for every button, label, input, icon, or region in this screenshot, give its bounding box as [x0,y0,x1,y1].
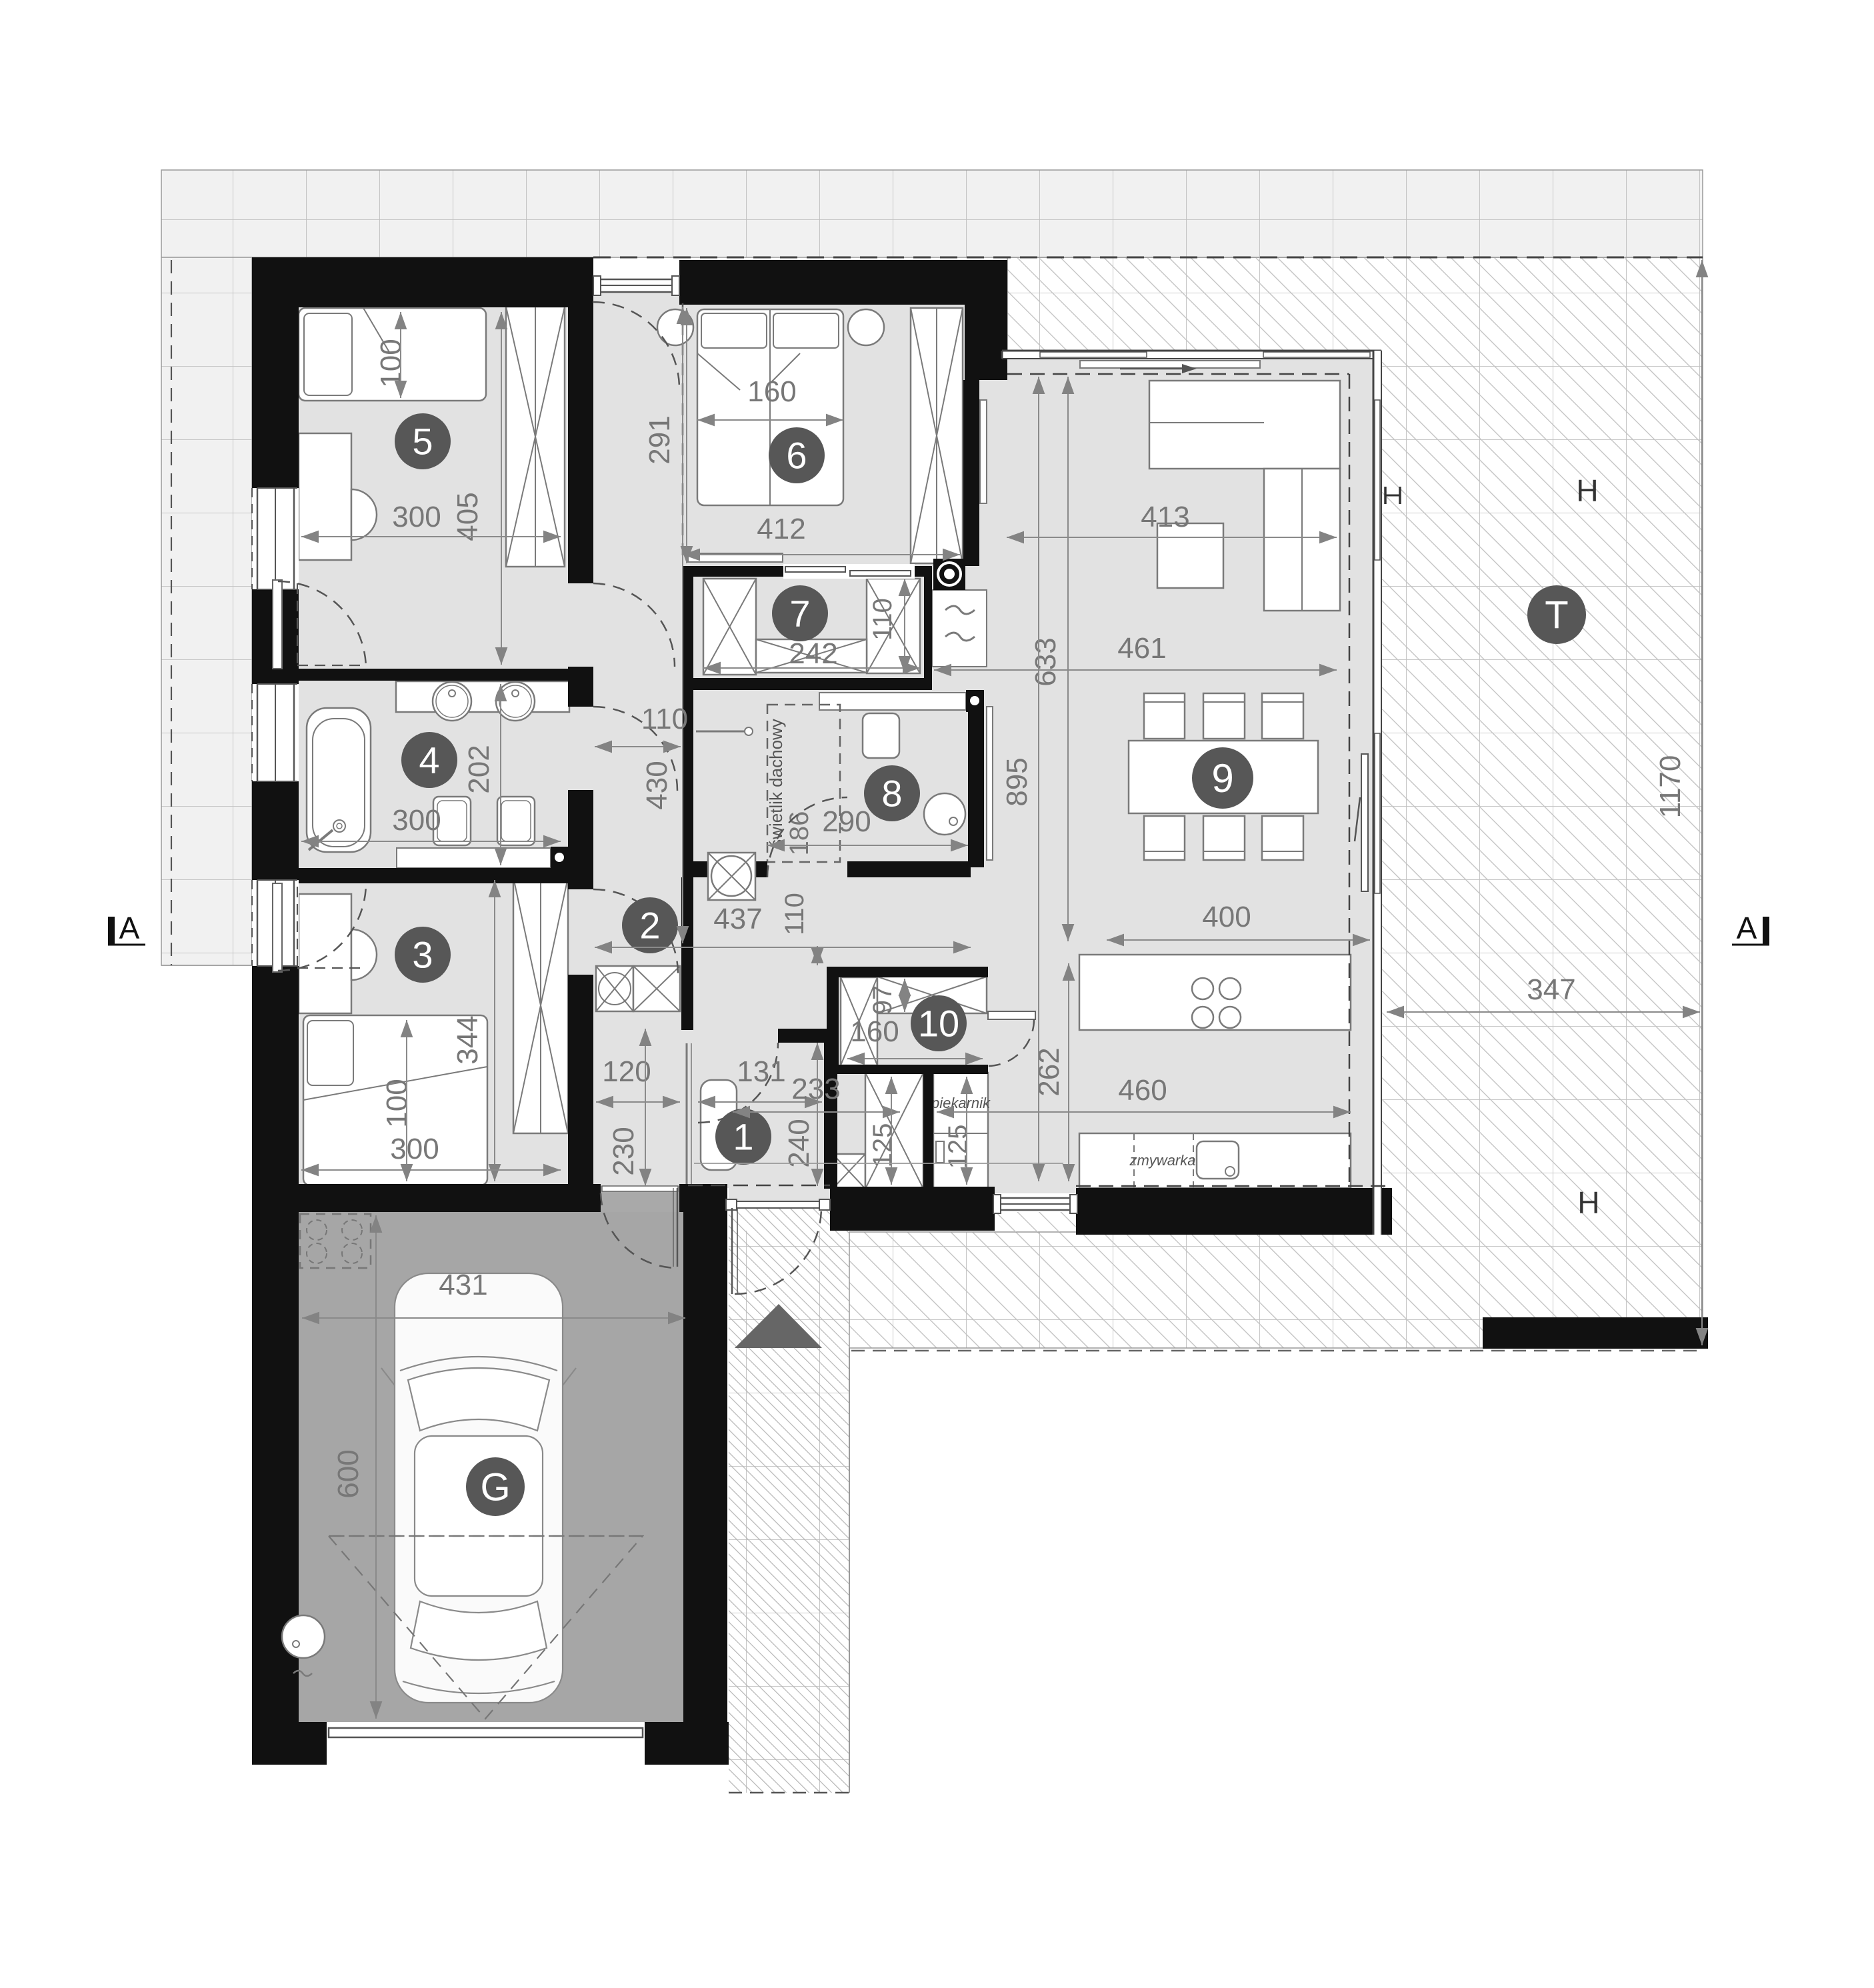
svg-text:7: 7 [789,593,810,635]
svg-text:110: 110 [780,893,809,935]
svg-text:600: 600 [332,1449,365,1498]
svg-text:291: 291 [643,415,676,464]
svg-text:5: 5 [412,421,433,463]
svg-text:125: 125 [943,1125,973,1169]
svg-text:400: 400 [1202,901,1251,933]
svg-text:T: T [1545,593,1568,637]
svg-text:437: 437 [713,903,762,935]
svg-text:9: 9 [1211,756,1233,801]
svg-text:1: 1 [733,1116,753,1158]
svg-text:120: 120 [602,1055,651,1088]
svg-text:G: G [480,1465,510,1509]
svg-text:110: 110 [868,598,897,641]
svg-text:2: 2 [639,905,660,947]
svg-text:A: A [119,911,140,945]
svg-text:6: 6 [786,435,807,477]
svg-text:160: 160 [747,375,796,408]
svg-text:290: 290 [822,805,871,838]
svg-text:202: 202 [463,745,495,793]
svg-text:344: 344 [451,1015,484,1064]
svg-text:100: 100 [375,339,407,387]
svg-text:A: A [1737,911,1757,945]
svg-text:300: 300 [392,804,441,837]
svg-text:413: 413 [1141,501,1189,533]
svg-text:4: 4 [419,739,439,781]
svg-text:431: 431 [439,1269,487,1301]
svg-text:300: 300 [392,501,441,533]
svg-text:131: 131 [737,1055,785,1088]
svg-text:H: H [1576,473,1598,508]
svg-text:412: 412 [757,513,805,545]
svg-text:10: 10 [918,1003,959,1045]
svg-text:piekarnik: piekarnik [931,1095,991,1111]
svg-text:347: 347 [1527,973,1575,1006]
svg-text:262: 262 [1033,1047,1065,1096]
svg-text:3: 3 [412,934,433,976]
svg-text:633: 633 [1029,637,1062,686]
svg-text:186: 186 [785,811,814,856]
svg-text:461: 461 [1117,632,1166,665]
svg-text:8: 8 [881,773,902,815]
svg-text:110: 110 [641,703,688,735]
svg-text:125: 125 [868,1123,897,1168]
svg-text:230: 230 [607,1127,640,1175]
svg-text:233: 233 [791,1073,840,1105]
svg-text:H: H [1577,1185,1599,1220]
svg-text:460: 460 [1118,1074,1167,1107]
svg-text:242: 242 [789,637,837,670]
svg-text:1170: 1170 [1654,755,1687,819]
svg-text:zmywarka: zmywarka [1129,1152,1195,1169]
svg-text:895: 895 [1001,757,1033,806]
svg-text:160: 160 [850,1015,899,1048]
svg-text:405: 405 [451,492,484,541]
svg-text:300: 300 [390,1133,439,1165]
svg-text:240: 240 [783,1119,815,1167]
svg-text:430: 430 [641,761,673,809]
svg-text:100: 100 [381,1079,413,1127]
svg-text:97: 97 [868,985,897,1015]
